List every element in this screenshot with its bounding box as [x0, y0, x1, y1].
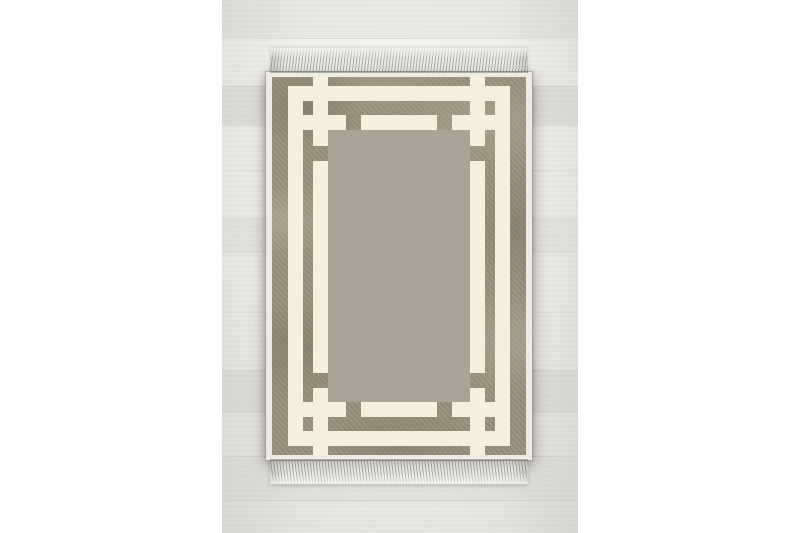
floor-plank-seam — [222, 38, 578, 39]
product-photo-canvas — [0, 0, 800, 533]
pattern-cream-band — [313, 388, 328, 455]
pattern-cream-band — [303, 115, 346, 130]
pattern-cream-band — [288, 86, 303, 446]
pattern-cream-band — [303, 402, 346, 417]
pattern-cream-band — [470, 388, 485, 455]
pattern-cream-band — [313, 77, 328, 146]
fringe-heading-shadow-top — [270, 71, 528, 73]
pattern-cream-band — [470, 77, 485, 146]
pattern-cream-band — [452, 115, 495, 130]
rug-mottled-border — [272, 77, 526, 455]
pattern-cream-band — [495, 86, 510, 446]
rug-fringe-top — [270, 48, 528, 72]
pattern-cream-band — [361, 402, 437, 417]
pattern-cream-band — [452, 402, 495, 417]
floor-plank-seam — [222, 500, 578, 501]
pattern-cream-band — [361, 115, 437, 130]
rug-greek-key-pattern — [272, 77, 526, 455]
floor-plank-tint — [222, 0, 578, 38]
rug-body-binding — [266, 72, 532, 460]
pattern-cream-band — [470, 161, 485, 373]
pattern-cream-band — [313, 161, 328, 373]
rug-center-field — [328, 130, 470, 402]
rug-fringe-bottom — [270, 460, 528, 484]
fringe-heading-shadow-bottom — [270, 459, 528, 461]
